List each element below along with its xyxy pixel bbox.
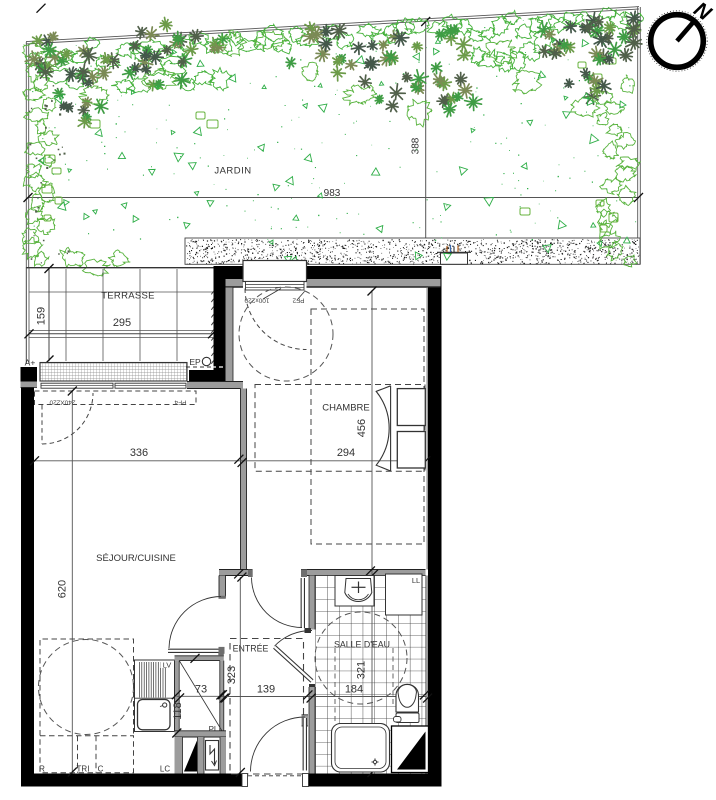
svg-text:321: 321 (356, 661, 368, 679)
svg-text:73: 73 (195, 684, 207, 696)
svg-text:139: 139 (257, 684, 275, 696)
svg-text:184: 184 (345, 684, 363, 696)
svg-text:LV: LV (163, 660, 172, 669)
svg-text:620: 620 (57, 580, 69, 598)
svg-text:388: 388 (411, 137, 422, 154)
svg-text:C: C (98, 765, 104, 774)
svg-text:PF4: PF4 (174, 398, 186, 405)
svg-text:LC: LC (160, 765, 170, 774)
svg-text:TERRASSE: TERRASSE (101, 291, 155, 302)
svg-text:ENTRÉE: ENTRÉE (233, 644, 269, 654)
svg-text:EP: EP (189, 357, 201, 367)
svg-text:PF2: PF2 (292, 296, 304, 303)
svg-text:295: 295 (113, 317, 131, 329)
svg-text:A+: A+ (25, 358, 36, 368)
svg-text:SÉJOUR/CUISINE: SÉJOUR/CUISINE (96, 553, 176, 564)
svg-text:323: 323 (226, 666, 238, 684)
svg-text:294: 294 (337, 447, 355, 459)
svg-text:CHAMBRE: CHAMBRE (322, 403, 370, 414)
svg-text:SALLE D'EAU: SALLE D'EAU (334, 640, 390, 650)
svg-text:LL: LL (412, 576, 420, 585)
svg-text:JARDIN: JARDIN (214, 166, 251, 177)
svg-text:983: 983 (324, 188, 341, 199)
svg-text:R: R (39, 765, 45, 774)
svg-text:336: 336 (130, 447, 148, 459)
svg-text:100x220: 100x220 (244, 296, 269, 303)
svg-text:240X220: 240X220 (49, 398, 75, 405)
svg-text:TRI: TRI (77, 765, 90, 774)
svg-text:456: 456 (356, 419, 368, 437)
svg-text:159: 159 (36, 307, 48, 325)
svg-text:118: 118 (172, 702, 184, 720)
